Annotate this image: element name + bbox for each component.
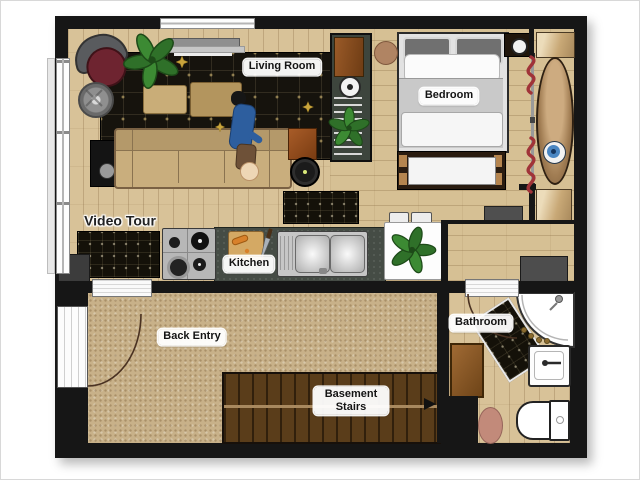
track-handle <box>530 117 535 123</box>
wall <box>447 220 574 224</box>
speaker-cone <box>99 163 115 179</box>
washer <box>520 256 568 283</box>
back-entry-label: Back Entry <box>158 329 225 345</box>
double-sink <box>277 231 368 277</box>
burner-dot <box>198 239 202 243</box>
video-tour-label[interactable]: Video Tour <box>79 211 161 230</box>
burner <box>169 237 180 248</box>
window <box>56 58 70 274</box>
sofa-seam <box>269 130 270 187</box>
back-door[interactable] <box>57 306 88 388</box>
wall <box>437 281 449 443</box>
coffee-table <box>143 85 187 114</box>
sink-bowl <box>534 351 564 380</box>
toilet-tank <box>549 400 570 441</box>
person-head <box>240 162 259 181</box>
pouf <box>374 41 398 65</box>
kitchen-doorway[interactable] <box>92 279 152 297</box>
wall <box>529 184 535 222</box>
round-stool <box>78 82 114 118</box>
wall <box>529 29 534 57</box>
sofa-back <box>116 130 290 151</box>
closet-panel <box>536 32 575 58</box>
eye-rug-pupil <box>551 149 556 154</box>
sofa-seam <box>132 130 133 187</box>
wood-mat <box>450 343 484 398</box>
vacuum-light <box>303 170 307 174</box>
dining-table <box>384 222 442 280</box>
bench-cushion <box>408 157 496 185</box>
closet-panel <box>536 189 572 223</box>
robot-vacuum <box>290 157 320 187</box>
basement-stairs-label: Basement Stairs <box>314 387 388 415</box>
vanity-sink <box>528 345 571 387</box>
kitchen-label: Kitchen <box>224 256 274 272</box>
blanket-fold <box>401 112 503 147</box>
stove-line <box>163 252 215 253</box>
drainboard <box>280 236 293 270</box>
wall <box>441 220 448 293</box>
faucet <box>319 268 327 274</box>
burner-dot <box>198 263 201 266</box>
eye-rug-circle <box>543 141 566 164</box>
flush-button <box>556 416 564 424</box>
speaker-dot <box>347 84 353 90</box>
side-table <box>288 128 317 160</box>
tv-shelf <box>174 53 232 56</box>
floor-mat <box>283 191 359 224</box>
speaker <box>504 33 531 57</box>
shelf-stripes <box>334 93 362 155</box>
speaker <box>339 76 361 98</box>
wall <box>449 396 478 443</box>
sofa-seam <box>178 150 179 183</box>
shelf-wood-panel <box>334 37 364 77</box>
bedroom-label: Bedroom <box>420 88 478 104</box>
bathroom-door[interactable] <box>465 279 519 297</box>
sink-basin <box>330 235 365 273</box>
speaker-cone <box>511 38 528 55</box>
bench-leg <box>399 173 407 185</box>
pot <box>167 256 190 279</box>
window-sill <box>47 58 55 274</box>
window <box>160 18 255 29</box>
oval-rug <box>536 57 574 185</box>
sectional-sofa <box>114 128 292 189</box>
burner <box>191 232 209 250</box>
oval-pink-rug <box>478 407 503 444</box>
sofa-seam <box>224 150 225 183</box>
bathroom-label: Bathroom <box>450 315 512 331</box>
bench-leg <box>399 155 407 167</box>
soundbar <box>163 46 245 53</box>
gas-stove <box>162 228 216 280</box>
foot-bench <box>397 151 506 190</box>
shelf-unit <box>330 33 372 162</box>
burner <box>193 258 206 271</box>
floor-plan: Living Room Bedroom Kitchen Video Tour B… <box>0 0 640 480</box>
living-room-label: Living Room <box>244 59 321 75</box>
